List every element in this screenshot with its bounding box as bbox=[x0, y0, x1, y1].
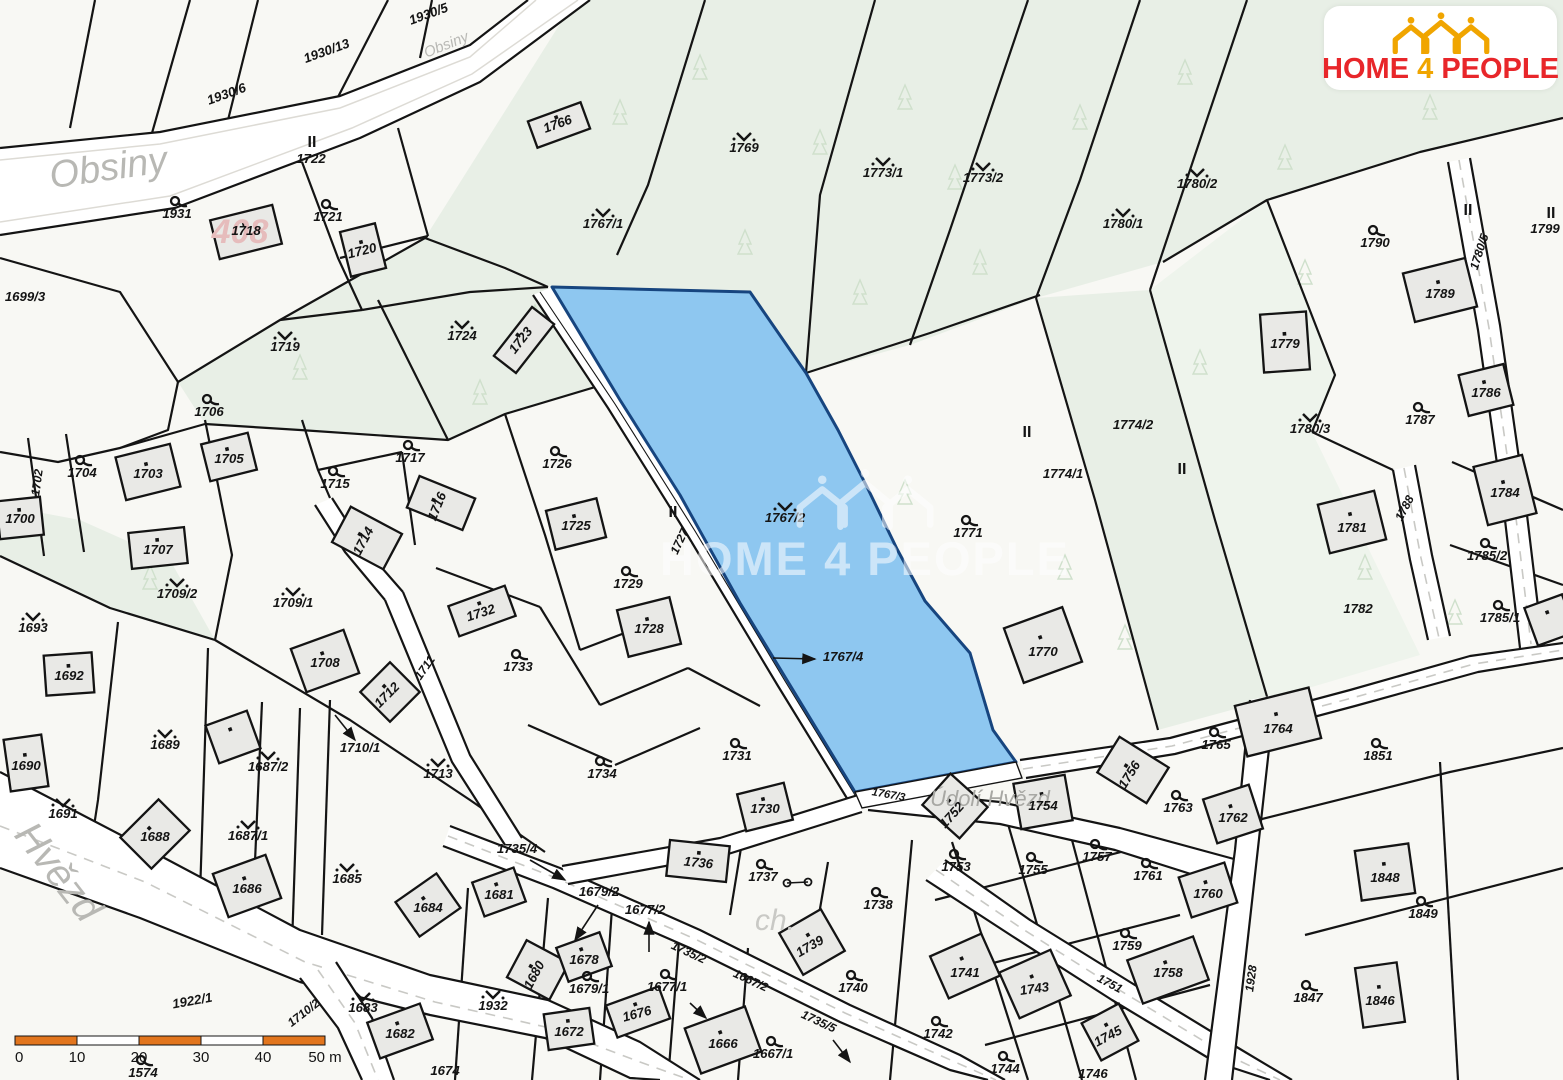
map-label-group: ch. bbox=[755, 904, 795, 937]
map-label-group: 1735/4 bbox=[497, 841, 538, 856]
parcel-label: 1773/2 bbox=[963, 170, 1004, 185]
reference-arrow bbox=[773, 658, 815, 659]
parcel-label: 1753 bbox=[941, 859, 971, 874]
map-label-group: 1782 bbox=[1343, 601, 1373, 616]
parcel-label: 1764 bbox=[1263, 721, 1293, 736]
parcel-label: 1687/2 bbox=[248, 759, 289, 774]
parcel-label: 1691 bbox=[48, 806, 77, 821]
parcel-label: 1780/1 bbox=[1103, 216, 1143, 231]
parcel-label: 1682 bbox=[385, 1026, 415, 1041]
map-label-group: II bbox=[1547, 205, 1556, 222]
scale-bar-tick: 0 bbox=[15, 1049, 23, 1066]
parcel-label: 1759 bbox=[1112, 938, 1142, 953]
scale-bar-segment bbox=[263, 1036, 325, 1045]
map-label-group: 1690 bbox=[11, 758, 41, 773]
parcel-label: 1780/2 bbox=[1177, 176, 1218, 191]
parcel-label: 1679/2 bbox=[579, 884, 620, 899]
parcel-label: 1780/3 bbox=[1290, 421, 1331, 436]
parcel-label: 1767/4 bbox=[823, 649, 864, 664]
parcel-label: 1667/1 bbox=[753, 1046, 793, 1061]
map-label-group: 1722 bbox=[296, 151, 326, 166]
scale-bar-segment bbox=[15, 1036, 77, 1045]
parcel-label: 1699/3 bbox=[5, 289, 46, 304]
parcel-label: 1672 bbox=[554, 1024, 584, 1039]
parcel-label: 1774/2 bbox=[1113, 417, 1154, 432]
parcel-label: 1685 bbox=[332, 871, 362, 886]
parcel-label: 1784 bbox=[1490, 485, 1520, 500]
map-label-group: 1767/4 bbox=[823, 649, 864, 664]
map-label-group: 1707 bbox=[143, 542, 173, 557]
scale-bar-tick: 20 bbox=[131, 1049, 148, 1066]
map-label-group: 1710/1 bbox=[340, 740, 380, 755]
parcel-label: 1687/1 bbox=[228, 828, 268, 843]
parcel-label: 1767/2 bbox=[765, 510, 806, 525]
parcel-label: 1724 bbox=[447, 328, 477, 343]
logo-text: HOME 4 PEOPLE bbox=[1322, 55, 1559, 84]
map-label-group: 1725 bbox=[561, 518, 591, 533]
map-label-group: 1681 bbox=[484, 887, 513, 902]
map-label-group: 1672 bbox=[554, 1024, 584, 1039]
parcel-label: 1746 bbox=[1078, 1066, 1108, 1080]
cadastral-map-page: ObsinyObsinyHvězdÚdolí Hvězdch.408193117… bbox=[0, 0, 1563, 1080]
map-label-group: 1789 bbox=[1425, 286, 1455, 301]
parcel-label: 1851 bbox=[1363, 748, 1392, 763]
parcel-label: 1931 bbox=[162, 206, 191, 221]
map-label-group: 1674 bbox=[430, 1063, 460, 1078]
parcel-label: 1742 bbox=[923, 1026, 953, 1041]
map-label-group: 1770 bbox=[1028, 644, 1058, 659]
parcel-label: 1932 bbox=[478, 998, 508, 1013]
parcel-label: 1674 bbox=[430, 1063, 460, 1078]
home4people-logo[interactable]: HOME 4 PEOPLE bbox=[1324, 6, 1557, 90]
parcel-label: 1769 bbox=[729, 140, 759, 155]
parcel-label: 1731 bbox=[722, 748, 751, 763]
scale-bar-tick: 40 bbox=[255, 1049, 272, 1066]
parcel-label: 1848 bbox=[1370, 870, 1400, 885]
parcel-label: 1708 bbox=[310, 655, 340, 670]
parcel-label: 1692 bbox=[54, 668, 84, 683]
map-label-group: 1799 bbox=[1530, 221, 1560, 236]
parcel-label: 1785/2 bbox=[1467, 548, 1508, 563]
map-label-group: 1754 bbox=[1028, 798, 1058, 813]
parcel-label: 1765 bbox=[1201, 737, 1231, 752]
parcel-label: 1718 bbox=[231, 223, 261, 238]
parcel-label: 1683 bbox=[348, 1000, 378, 1015]
parcel-label: 1790 bbox=[1360, 235, 1390, 250]
parcel-label: 1781 bbox=[1337, 520, 1366, 535]
parcel-label: 1717 bbox=[395, 450, 425, 465]
parcel-label: 1722 bbox=[296, 151, 326, 166]
parcel-label: 1787 bbox=[1405, 412, 1435, 427]
map-label-group: 1700 bbox=[5, 511, 35, 526]
parcel-label: 1705 bbox=[214, 451, 244, 466]
parcel-label: 1706 bbox=[194, 404, 224, 419]
building-dot bbox=[23, 753, 27, 757]
parcel-label: 1846 bbox=[1365, 993, 1395, 1008]
parcel-label: II bbox=[1547, 205, 1556, 222]
parcel-label: 1715 bbox=[320, 476, 350, 491]
parcel-label: 1847 bbox=[1293, 990, 1323, 1005]
map-label-group: 1686 bbox=[232, 881, 262, 896]
parcel-label: 1789 bbox=[1425, 286, 1455, 301]
parcel-label: 1786 bbox=[1471, 385, 1501, 400]
map-label-group: II bbox=[1178, 461, 1187, 478]
parcel-label: II bbox=[1178, 461, 1187, 478]
parcel-label: 1782 bbox=[1343, 601, 1373, 616]
parcel-label: 1728 bbox=[634, 621, 664, 636]
map-label-group: II bbox=[1464, 202, 1473, 219]
scale-bar-segment bbox=[139, 1036, 201, 1045]
parcel-label: 1737 bbox=[748, 869, 778, 884]
building-dot bbox=[1382, 862, 1386, 866]
parcel-label: 1849 bbox=[1408, 906, 1438, 921]
parcel-label: 1689 bbox=[150, 737, 180, 752]
parcel-label: 1729 bbox=[613, 576, 643, 591]
map-label-group: 1741 bbox=[950, 965, 979, 980]
parcel-label: 1736 bbox=[683, 854, 714, 872]
map-label-group: 1705 bbox=[214, 451, 244, 466]
parcel-label: II bbox=[1464, 202, 1473, 219]
parcel-label: ch. bbox=[755, 904, 795, 937]
parcel-label: 1740 bbox=[838, 980, 868, 995]
parcel-label: 1713 bbox=[423, 766, 453, 781]
map-label-group: 1848 bbox=[1370, 870, 1400, 885]
parcel-label: 1755 bbox=[1018, 862, 1048, 877]
parcel-label: 1684 bbox=[413, 900, 443, 915]
map-label-group: 1679/2 bbox=[579, 884, 620, 899]
map-label-group: 1746 bbox=[1078, 1066, 1108, 1080]
parcel-label: 1688 bbox=[140, 829, 170, 844]
parcel-label: 1799 bbox=[1530, 221, 1560, 236]
map-label-group: 1708 bbox=[310, 655, 340, 670]
parcel-label: 1779 bbox=[1270, 336, 1300, 351]
map-label-group: 1678 bbox=[569, 952, 599, 967]
houses-icon bbox=[1381, 12, 1501, 54]
logo-word-people: PEOPLE bbox=[1441, 53, 1559, 85]
map-label-group: II bbox=[1023, 424, 1032, 441]
map-label-group: 1846 bbox=[1365, 993, 1395, 1008]
map-label-group: 1784 bbox=[1490, 485, 1520, 500]
parcel-label: 1760 bbox=[1193, 886, 1223, 901]
map-label-group: 1786 bbox=[1471, 385, 1501, 400]
logo-word-4: 4 bbox=[1417, 53, 1433, 85]
parcel-label: 1704 bbox=[67, 465, 97, 480]
map-label-group: 1764 bbox=[1263, 721, 1293, 736]
parcel-label: 1758 bbox=[1153, 965, 1183, 980]
scale-bar-tick: 50 m bbox=[308, 1049, 341, 1066]
parcel-label: 1762 bbox=[1218, 810, 1248, 825]
parcel-label: 1741 bbox=[950, 965, 979, 980]
scale-bar-segment bbox=[201, 1036, 263, 1045]
map-label-group: 1730 bbox=[750, 801, 780, 816]
parcel-label: 1744 bbox=[990, 1061, 1020, 1076]
parcel-label: 1735/4 bbox=[497, 841, 538, 856]
parcel-label: 1700 bbox=[5, 511, 35, 526]
parcel-label: 1719 bbox=[270, 339, 300, 354]
parcel-label: 1709/1 bbox=[273, 595, 313, 610]
map-label-group: 1703 bbox=[133, 466, 163, 481]
parcel-label: 1725 bbox=[561, 518, 591, 533]
map-label-group: 1682 bbox=[385, 1026, 415, 1041]
parcel-label: 1703 bbox=[133, 466, 163, 481]
parcel-label: 1757 bbox=[1082, 849, 1112, 864]
cadastral-map[interactable]: ObsinyObsinyHvězdÚdolí Hvězdch.408193117… bbox=[0, 0, 1563, 1080]
parcel-label: 1774/1 bbox=[1043, 466, 1083, 481]
parcel-label: 1754 bbox=[1028, 798, 1058, 813]
map-label-group: 1760 bbox=[1193, 886, 1223, 901]
parcel-label: 1763 bbox=[1163, 800, 1193, 815]
parcel-label: 1707 bbox=[143, 542, 173, 557]
parcel-label: 1738 bbox=[863, 897, 893, 912]
map-label-group: II bbox=[308, 134, 317, 151]
map-label-group: 1684 bbox=[413, 900, 443, 915]
parcel-label: 1679/1 bbox=[569, 981, 609, 996]
building-dot bbox=[1377, 985, 1381, 989]
parcel-label: 1771 bbox=[953, 525, 982, 540]
map-label-group: 1762 bbox=[1218, 810, 1248, 825]
parcel-label: 1677/1 bbox=[647, 979, 687, 994]
map-label-group: II bbox=[669, 504, 678, 521]
map-label-group: 1677/2 bbox=[625, 902, 666, 917]
map-label-group: 1781 bbox=[1337, 520, 1366, 535]
map-label-group: 1758 bbox=[1153, 965, 1183, 980]
parcel-label: 1710/1 bbox=[340, 740, 380, 755]
parcel-label: 1693 bbox=[18, 620, 48, 635]
scale-bar-tick: 10 bbox=[69, 1049, 86, 1066]
scale-bar-segment bbox=[77, 1036, 139, 1045]
parcel-label: 1785/1 bbox=[1480, 610, 1520, 625]
map-label-group: 1718 bbox=[231, 223, 261, 238]
parcel-label: 1721 bbox=[313, 209, 342, 224]
parcel-label: 1574 bbox=[128, 1065, 158, 1080]
map-label-group: 1774/1 bbox=[1043, 466, 1083, 481]
map-label-group: 1736 bbox=[683, 854, 714, 872]
map-label-group: 1774/2 bbox=[1113, 417, 1154, 432]
parcel-label: 1690 bbox=[11, 758, 41, 773]
building-dot bbox=[566, 1019, 570, 1023]
map-label-group: 1728 bbox=[634, 621, 664, 636]
parcel-label: 1773/1 bbox=[863, 165, 903, 180]
parcel-label: 1686 bbox=[232, 881, 262, 896]
parcel-label: 1681 bbox=[484, 887, 513, 902]
map-label-group: 1692 bbox=[54, 668, 84, 683]
parcel-label: 1678 bbox=[569, 952, 599, 967]
map-label-group: 1666 bbox=[708, 1036, 738, 1051]
parcel-label: 1770 bbox=[1028, 644, 1058, 659]
map-label-group: 1779 bbox=[1270, 336, 1300, 351]
parcel-label: II bbox=[308, 134, 317, 151]
parcel-label: 1726 bbox=[542, 456, 572, 471]
parcel-label: 1666 bbox=[708, 1036, 738, 1051]
boundary-segment bbox=[787, 882, 808, 883]
scale-bar-tick: 30 bbox=[193, 1049, 210, 1066]
parcel-label: 1709/2 bbox=[157, 586, 198, 601]
parcel-label: 1733 bbox=[503, 659, 533, 674]
parcel-label: II bbox=[669, 504, 678, 521]
parcel-label: 1734 bbox=[587, 766, 617, 781]
map-label-group: 1688 bbox=[140, 829, 170, 844]
parcel-label: 1767/1 bbox=[583, 216, 623, 231]
parcel-label: 1761 bbox=[1133, 868, 1162, 883]
parcel-label: 1730 bbox=[750, 801, 780, 816]
logo-word-home: HOME bbox=[1322, 53, 1409, 85]
parcel-label: II bbox=[1023, 424, 1032, 441]
parcel-label: 1677/2 bbox=[625, 902, 666, 917]
map-label-group: 1699/3 bbox=[5, 289, 46, 304]
